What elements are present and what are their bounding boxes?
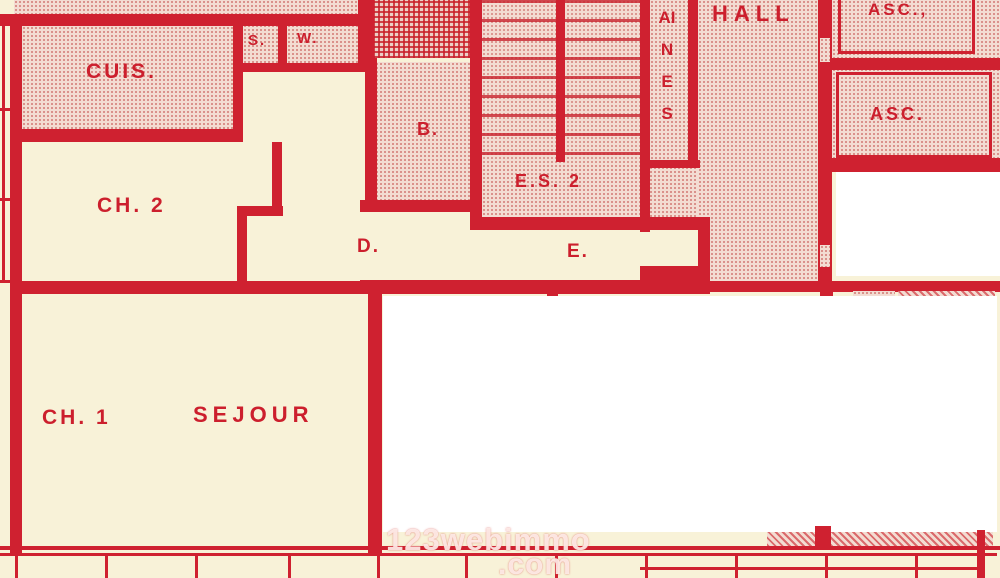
masked-region-top-right [836, 172, 1000, 276]
tile-divider-6 [465, 556, 468, 578]
wall-shaft-right [688, 0, 698, 166]
hall-room [698, 0, 818, 283]
wall-kitchen-right [233, 14, 243, 140]
label-elevator1: ASC., [868, 1, 928, 20]
masked-region-bottom [383, 296, 997, 532]
label-bedroom2: CH. 2 [97, 194, 166, 217]
label-bedroom1: CH. 1 [42, 406, 111, 429]
label-elevator2: ASC. [870, 105, 925, 125]
label-living: SEJOUR [193, 403, 313, 427]
tile-divider-10 [825, 556, 828, 578]
label-shaft-vertical: AINES [658, 2, 676, 130]
wall-elevator2-bottom [832, 158, 1000, 172]
wall-bedrooms-top [10, 281, 383, 294]
top-band-room [14, 0, 372, 14]
wall-kitchen-bottom [10, 129, 243, 142]
wall-s-w-bottom [233, 63, 374, 72]
wall-left-edge-line [2, 15, 5, 283]
small-service-room [645, 166, 700, 218]
label-wc: W. [297, 31, 319, 48]
wall-service-room-bottom [645, 218, 700, 230]
tile-divider-3 [195, 556, 198, 578]
wall-stairs-left [470, 0, 482, 230]
floor-plan: CUIS. S. W. B. CH. 2 D. E. E.S. 2 HALL A… [0, 0, 1000, 578]
wall-bath-left [365, 58, 377, 208]
wall-s-w-divider [278, 24, 287, 66]
wall-bottom-stub-left [815, 526, 831, 550]
wall-living-right [368, 281, 382, 556]
tile-divider-4 [288, 556, 291, 578]
watermark-line2: .com [498, 548, 572, 578]
label-hall: HALL [712, 2, 795, 26]
tile-divider-2 [105, 556, 108, 578]
duct-block [373, 0, 472, 58]
wall-left-tick-2 [0, 198, 12, 201]
wall-bottom-stub-right [977, 530, 985, 578]
label-storage: S. [248, 33, 266, 50]
wall-closet-left [237, 206, 247, 284]
label-stair-lobby: E.S. 2 [515, 172, 582, 192]
label-bath: B. [417, 120, 439, 140]
wall-left-tick-1 [0, 108, 12, 111]
wall-bottom-line-c [640, 567, 985, 570]
tile-divider-5 [377, 556, 380, 578]
balcony-hatch-bottom [767, 530, 993, 546]
wall-elevator-divider [832, 58, 1000, 70]
label-corridor-d: D. [357, 237, 380, 258]
tile-divider-1 [15, 556, 18, 578]
wall-bedroom2-right [272, 142, 282, 208]
wall-bath-bottom [360, 200, 482, 212]
wall-stairs-right [640, 0, 650, 232]
hall-door-gap-2 [820, 245, 830, 267]
label-kitchen: CUIS. [86, 60, 157, 83]
hall-door-gap-1 [820, 38, 830, 62]
tile-divider-8 [645, 556, 648, 578]
wall-service-room-top [645, 160, 700, 168]
tile-divider-11 [915, 556, 918, 578]
wall-top-band [0, 14, 372, 26]
wall-stair-stringer [556, 0, 565, 162]
label-corridor-e: E. [567, 242, 589, 263]
tile-divider-9 [735, 556, 738, 578]
